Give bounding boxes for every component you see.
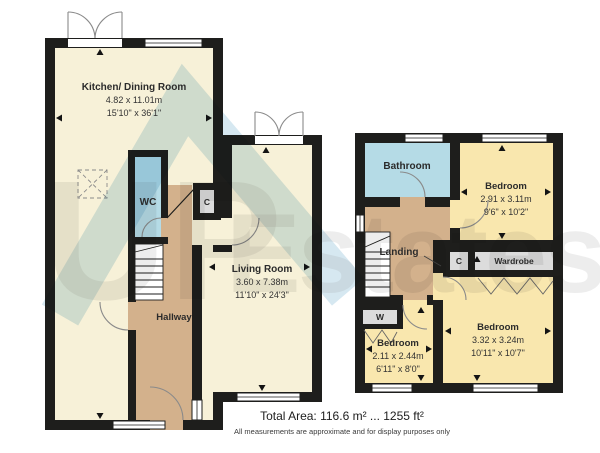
room-name: Kitchen/ Dining Room xyxy=(82,81,186,94)
living-patio-left-arc xyxy=(255,112,279,136)
room-size-metric: 3.32 x 3.24m xyxy=(471,334,525,347)
living-room-label: Living Room 3.60 x 7.38m 11'10" x 24'3" xyxy=(232,263,293,302)
cupboard-ground-label: C xyxy=(204,196,210,209)
kitchen-door-gap xyxy=(128,302,136,330)
disclaimer-text: All measurements are approximate and for… xyxy=(192,427,492,436)
room-size-imperial: 11'10" x 24'3" xyxy=(232,289,293,302)
room-name: C xyxy=(204,196,210,209)
stairs-outline xyxy=(135,244,163,300)
living-doorway-floor xyxy=(192,218,232,245)
hallway-label: Hallway xyxy=(156,311,191,324)
bedroom-small-label: Bedroom 2.11 x 2.44m 6'11" x 8'0" xyxy=(372,337,423,376)
footer: Total Area: 116.6 m² ... 1255 ft² All me… xyxy=(192,409,492,436)
ground-floor-plan xyxy=(45,12,322,430)
room-size-imperial: 10'11" x 10'7" xyxy=(471,347,525,360)
room-size-metric: 2.91 x 3.11m xyxy=(480,193,531,206)
living-patio-doorway xyxy=(255,136,303,144)
first-stairs xyxy=(365,232,390,297)
room-name: Living Room xyxy=(232,263,293,276)
room-size-imperial: 9'6" x 10'2" xyxy=(480,206,531,219)
patio-door-left-arc xyxy=(68,12,95,38)
floorplan-canvas: UP Estates Kitchen/ Dining Room 4.82 x 1… xyxy=(0,0,600,453)
room-name: Hallway xyxy=(156,311,191,324)
bathroom-label: Bathroom xyxy=(383,160,430,173)
living-floor-lower xyxy=(207,252,232,392)
landing-label: Landing xyxy=(380,246,419,259)
patio-door-right-arc xyxy=(95,12,122,38)
w-cupboard-label: W xyxy=(376,311,384,324)
wc-door-gap xyxy=(161,218,168,237)
room-size-imperial: 6'11" x 8'0" xyxy=(372,363,423,376)
room-name: Bedroom xyxy=(480,180,531,193)
kitchen-label: Kitchen/ Dining Room 4.82 x 11.01m 15'10… xyxy=(82,81,186,120)
room-name: WC xyxy=(140,196,157,209)
total-area-text: Total Area: 116.6 m² ... 1255 ft² xyxy=(192,409,492,423)
hallway-corridor-floor xyxy=(168,185,192,420)
bathroom-door-gap xyxy=(400,197,425,207)
living-patio-right-arc xyxy=(279,112,303,136)
wc-label: WC xyxy=(140,196,157,209)
room-size-imperial: 15'10" x 36'1" xyxy=(82,107,186,120)
room-size-metric: 2.11 x 2.44m xyxy=(372,350,423,363)
bedroom-top-label: Bedroom 2.91 x 3.11m 9'6" x 10'2" xyxy=(480,180,531,219)
room-name: C xyxy=(456,255,462,268)
bedroom-large-label: Bedroom 3.32 x 3.24m 10'11" x 10'7" xyxy=(471,321,525,360)
floorplan-drawing xyxy=(0,0,600,453)
room-name: Bedroom xyxy=(471,321,525,334)
ground-stairs xyxy=(135,244,163,300)
room-size-metric: 4.82 x 11.01m xyxy=(82,94,186,107)
wardrobe-label: Wardrobe xyxy=(494,255,533,268)
cupboard-first-label: C xyxy=(456,255,462,268)
room-name: Landing xyxy=(380,246,419,259)
room-name: Bedroom xyxy=(372,337,423,350)
room-name: W xyxy=(376,311,384,324)
room-name: Wardrobe xyxy=(494,255,533,268)
room-name: Bathroom xyxy=(383,160,430,173)
room-size-metric: 3.60 x 7.38m xyxy=(232,276,293,289)
kitchen-patio-doorway xyxy=(68,39,122,47)
